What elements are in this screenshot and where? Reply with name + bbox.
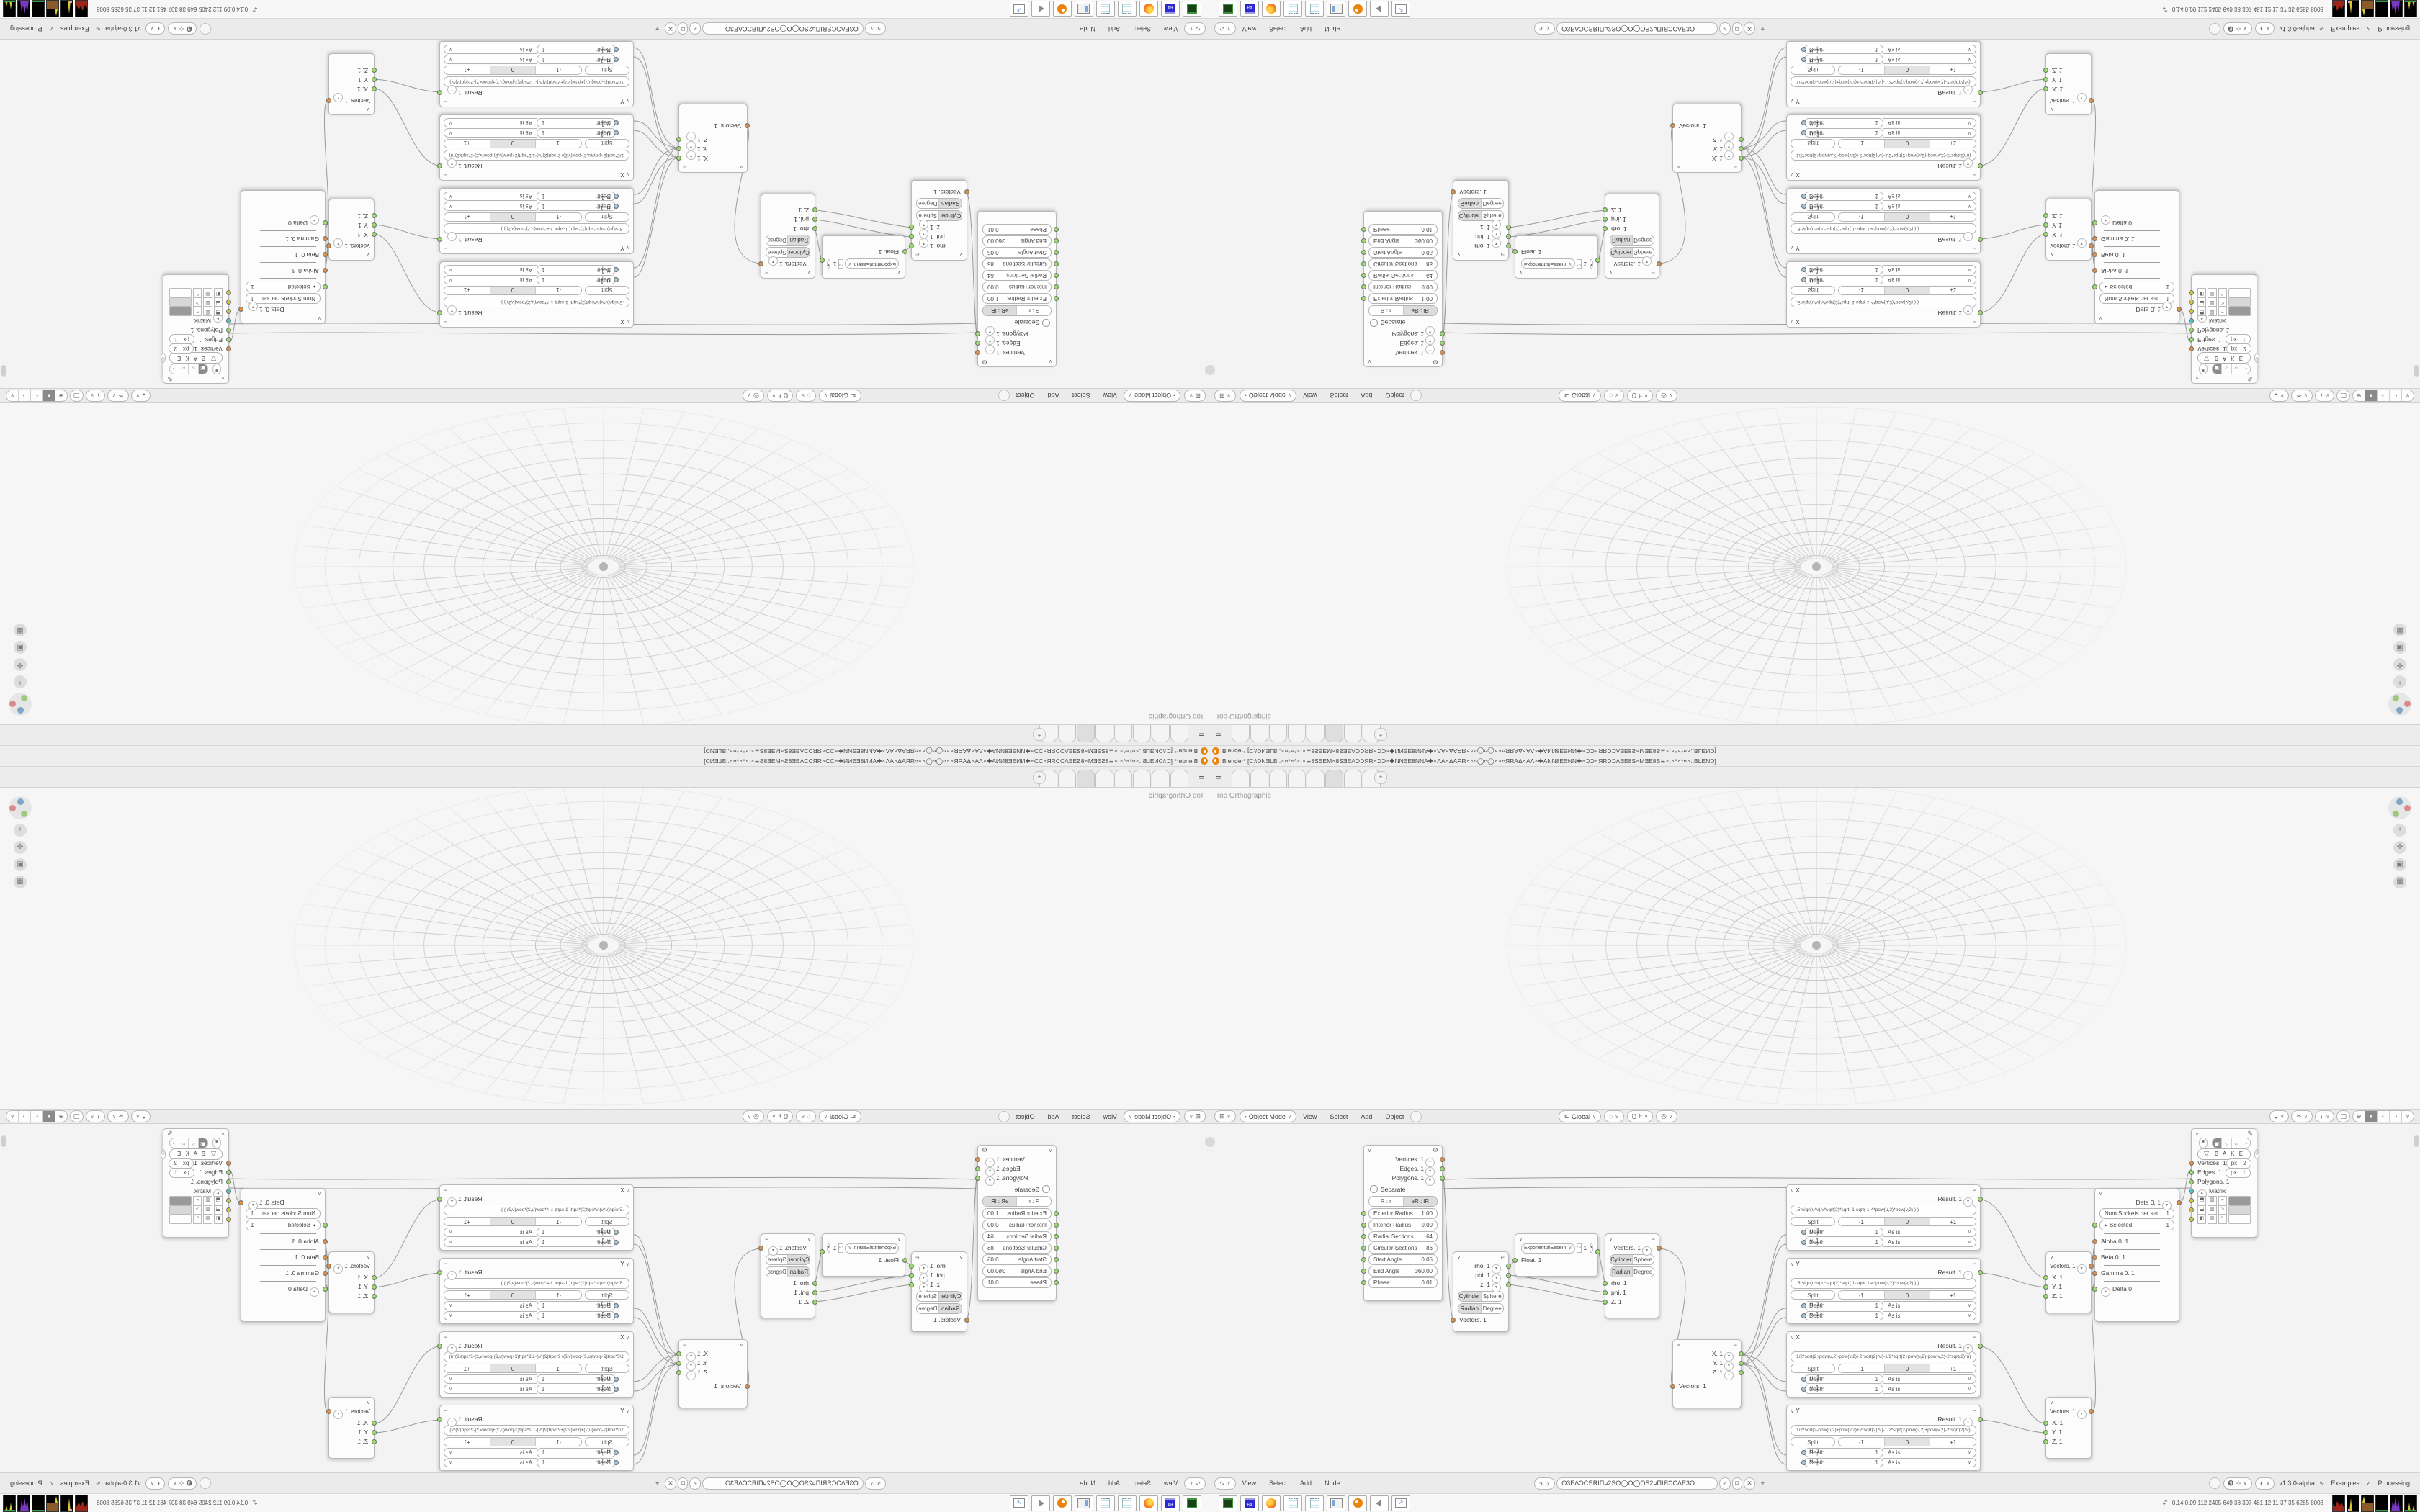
minus-one-button[interactable]: -1 (1839, 1291, 1884, 1299)
vector-in-node[interactable]: ∨ Vectors. 1▾ X. 1 Y. 1 Z. 1 (2045, 1251, 2092, 1313)
fake-user-shield-button[interactable]: ✓ (689, 23, 701, 35)
socket[interactable] (758, 261, 763, 266)
app-window-icon[interactable] (1075, 1, 1093, 17)
angle-unit-toggle[interactable]: RadianDegree (1458, 198, 1504, 209)
socket[interactable] (1361, 284, 1366, 289)
socket[interactable] (372, 1421, 377, 1426)
new-copy-button[interactable]: ⧉ (1732, 23, 1742, 35)
socket[interactable] (226, 1207, 231, 1212)
workspace-tab[interactable] (1288, 725, 1306, 742)
bake-button[interactable]: ▽B A K E (2197, 353, 2251, 364)
socket[interactable] (1054, 1280, 1059, 1285)
notepad-icon[interactable] (1283, 1495, 1302, 1511)
socket[interactable] (323, 1223, 328, 1228)
shading-solid-icon[interactable]: ● (43, 1111, 55, 1122)
socket[interactable] (676, 137, 681, 142)
socket[interactable] (1506, 234, 1511, 239)
collapse-icon[interactable]: ∨ (1049, 359, 1052, 365)
socket[interactable] (1440, 331, 1445, 336)
eye-icon[interactable]: ◉ (212, 364, 221, 374)
zero-button[interactable]: 0 (1884, 287, 1930, 294)
verts-toggle-icon[interactable]: ▣ (2213, 1138, 2221, 1148)
socket[interactable] (975, 341, 980, 346)
ramp-icon[interactable]: ﹆ (2218, 1205, 2227, 1215)
wifi-icon[interactable]: ◎ (161, 1149, 166, 1159)
plus-one-button[interactable]: +1 (444, 140, 490, 148)
coord-system-toggle[interactable]: CylinderSphere (1610, 1254, 1654, 1265)
shading-dropdown-icon[interactable]: ∨ (2401, 390, 2414, 401)
number-field[interactable]: Start Angle0.05 (982, 247, 1052, 258)
socket[interactable] (2043, 1275, 2048, 1280)
menu-object[interactable]: Object (1385, 1113, 1404, 1120)
socket[interactable] (909, 234, 914, 239)
pan-icon[interactable]: ✛ (14, 841, 27, 854)
split-button[interactable]: Split (585, 1437, 629, 1446)
formula-node-x[interactable]: ∨X⌐ Result. 1▾ .5*sign(u*v)/v*sqrt(2)*sq… (439, 261, 634, 328)
formula-input[interactable]: .5*sign(u*v)/u*sqrt(2)*sqrt( 1-sqrt( 1-4… (1791, 223, 1976, 234)
unlink-button[interactable]: ✕ (1744, 23, 1755, 35)
shading-rendered-icon[interactable]: ◑ (2389, 390, 2401, 401)
collapse-icon[interactable]: ∨ (367, 1254, 370, 1260)
socket[interactable] (1801, 1230, 1806, 1235)
socket[interactable] (1603, 1300, 1608, 1305)
socket[interactable] (1603, 1281, 1608, 1286)
workspace-tab[interactable] (1152, 770, 1170, 787)
split-button[interactable]: Split (585, 1217, 629, 1226)
vert-color-icon[interactable]: ⬒ (2197, 307, 2206, 316)
menu-view[interactable]: View (1164, 25, 1178, 32)
socket[interactable] (437, 1417, 442, 1422)
plus-one-button[interactable]: +1 (444, 66, 490, 74)
edges-toggle-icon[interactable]: ○ (2221, 1138, 2231, 1148)
wifi-icon[interactable]: ◎ (2254, 1149, 2259, 1159)
orientation-dropdown[interactable]: ⊾Global∨ (819, 390, 861, 402)
plus-one-button[interactable]: +1 (444, 1364, 490, 1372)
collapse-icon[interactable]: ∨ (897, 1236, 901, 1242)
socket[interactable] (323, 1255, 328, 1260)
collapse-icon[interactable]: ∨ (1791, 1336, 1794, 1341)
menu-add[interactable]: Add (1108, 25, 1120, 32)
socket[interactable] (372, 68, 377, 73)
split-button[interactable]: Split (585, 212, 629, 222)
torus-node[interactable]: ∨⚙ Vertices. 1▾ Edges. 1▾ Polygons. 1▾ S… (1363, 1145, 1443, 1301)
socket[interactable] (1361, 1246, 1366, 1251)
element-toggles[interactable]: ▣ ○ ○ ◔ (169, 364, 208, 374)
torus-node[interactable]: ∨⚙ Vertices. 1▾ Edges. 1▾ Polygons. 1▾ S… (977, 1145, 1057, 1301)
socket[interactable] (326, 1409, 331, 1414)
zoom-icon[interactable]: + (14, 824, 27, 837)
editor-type-dropdown[interactable]: ⊞∨ (1184, 390, 1206, 402)
collapse-icon[interactable]: ∨ (897, 271, 901, 276)
speaker-icon[interactable] (1031, 1, 1050, 17)
3d-viewport[interactable]: Top Orthographic + ✛ ▣ ▦ (0, 403, 1210, 724)
collapse-icon[interactable]: ∨ (959, 253, 963, 258)
torus-mode-toggle[interactable]: R : r eR : iR (1368, 305, 1438, 316)
collapse-icon[interactable]: ∨ (1609, 1236, 1613, 1242)
socket[interactable] (1451, 189, 1456, 194)
socket[interactable] (1512, 1258, 1518, 1263)
workspace-tab[interactable] (1307, 725, 1325, 742)
grid-toggle-icon[interactable]: ▦ (14, 624, 27, 636)
selected-field[interactable]: ▸Selected1 (2099, 282, 2174, 292)
app-window-icon[interactable] (1327, 1495, 1345, 1511)
num-sockets-field[interactable]: Num Sockets per set1 (246, 1208, 321, 1219)
socket[interactable] (1595, 1249, 1600, 1254)
window-arrow-icon[interactable]: ↗ (1010, 1, 1028, 17)
split-button[interactable]: Split (1791, 1217, 1835, 1226)
snap-dropdown[interactable]: Ʊ⊦∨ (767, 390, 794, 402)
socket[interactable] (2189, 318, 2194, 323)
menu-view[interactable]: View (1103, 1113, 1117, 1120)
add-workspace-button[interactable]: + (1033, 771, 1046, 784)
socket[interactable] (1440, 350, 1445, 355)
socket[interactable] (1361, 227, 1366, 232)
camera-icon[interactable]: ▣ (2393, 858, 2406, 871)
zero-button[interactable]: 0 (490, 213, 537, 221)
number-field[interactable]: Exterior Radius1.00 (1368, 1208, 1438, 1219)
bake-button[interactable]: ▽B A K E (169, 353, 223, 364)
layout-dropdown[interactable]: ➒⊹∨ (2223, 1477, 2252, 1490)
window-arrow-icon[interactable]: ↗ (1391, 1495, 1410, 1511)
formula-node-x[interactable]: ∨X⌐ Result. 1▾ .5*sign(u*v)/v*sqrt(2)*sq… (1786, 261, 1981, 328)
shading-wireframe-icon[interactable]: ⊕ (55, 1111, 67, 1122)
socket[interactable] (1978, 1417, 1983, 1422)
socket[interactable] (2043, 1430, 2048, 1435)
split-button[interactable]: Split (585, 139, 629, 148)
examples-menu[interactable]: Examples (60, 1480, 89, 1487)
minus-one-button[interactable]: -1 (536, 213, 581, 221)
coord-system-toggle[interactable]: CylinderSphere (766, 1254, 810, 1265)
layout-dropdown[interactable]: ➒⊹∨ (2223, 23, 2252, 35)
split-button[interactable]: Split (1791, 139, 1835, 148)
eye-icon[interactable]: ◉ (2199, 364, 2208, 374)
socket[interactable] (614, 277, 619, 282)
minus-one-button[interactable]: -1 (536, 1438, 581, 1446)
plus-one-button[interactable]: +1 (444, 1438, 490, 1446)
object-visibility-dropdown[interactable]: ◒∨ (131, 1110, 151, 1122)
tree-browse-dropdown[interactable]: ∿∨ (865, 23, 887, 35)
socket[interactable] (2189, 1217, 2194, 1222)
data-list-node[interactable]: ∨ Data 0. 1▾ Num Sockets per set1 ▸Selec… (241, 1188, 326, 1322)
shading-material-icon[interactable]: ◐ (2377, 1111, 2389, 1122)
verts-toggle-icon[interactable]: ▣ (199, 1138, 207, 1148)
separate-checkbox[interactable]: Separate (978, 1185, 1056, 1194)
object-visibility-dropdown[interactable]: ◒∨ (2269, 390, 2290, 402)
socket[interactable] (372, 213, 377, 218)
number-field[interactable]: Start Angle0.05 (982, 1254, 1052, 1265)
menu-node[interactable]: Node (1080, 25, 1095, 32)
palette-icon[interactable]: ▥ (2208, 297, 2216, 307)
menu-hamburger-icon[interactable]: ≡ (1216, 772, 1227, 781)
angle-unit-toggle[interactable]: RadianDegree (916, 198, 962, 209)
collapse-icon[interactable]: ∨ (1791, 1189, 1794, 1194)
collapse-icon[interactable]: ∨ (1609, 271, 1613, 276)
socket[interactable] (226, 1179, 231, 1184)
socket[interactable] (2092, 268, 2097, 273)
pin-icon[interactable]: ⌖ (655, 25, 659, 33)
editor-type-dropdown[interactable]: ∿∨ (1184, 1477, 1206, 1490)
socket[interactable] (2043, 1294, 2048, 1299)
shading-wireframe-icon[interactable]: ⊕ (2353, 390, 2365, 401)
socket[interactable] (1801, 47, 1806, 52)
workspace-tab[interactable] (1232, 770, 1250, 787)
xray-toggle[interactable]: ▢ (2336, 390, 2350, 402)
easing-node[interactable]: ∨ ExponentialEaseIn∨ ∿ 1 ▾ Float. 1 (1515, 1233, 1598, 1277)
tree-name-field[interactable]: O3EΛƆCЯRIΠ¤2SO◯O◯OS2¤ΠIЯƆCΛE3O (702, 1477, 864, 1490)
socket[interactable] (1978, 1344, 1983, 1349)
formula-node-y2[interactable]: ∨Y⌐ Result. 1▾ 1/2*sqrt(2-pow(u,2)+pow(v… (439, 1405, 634, 1471)
wifi-icon[interactable]: ◎ (161, 354, 166, 364)
formula-input[interactable]: 1/2*sqrt(2+pow(u,2)-pow(v,2)+2*sqrt(2)*u… (1791, 150, 1976, 161)
collapse-icon[interactable]: ∨ (626, 1336, 629, 1341)
menu-node[interactable]: Node (1325, 1480, 1340, 1487)
socket[interactable] (676, 1351, 681, 1356)
element-toggles[interactable]: ▣ ○ ○ ◔ (2212, 364, 2251, 374)
unlink-button[interactable]: ✕ (665, 1477, 676, 1490)
socket[interactable] (614, 1240, 619, 1245)
socket[interactable] (1054, 296, 1059, 301)
tool-settings-button[interactable] (998, 390, 1010, 402)
zero-button[interactable]: 0 (490, 140, 537, 148)
plus-one-button[interactable]: +1 (444, 287, 490, 294)
number-field[interactable]: Phase0.01 (1368, 1277, 1438, 1288)
socket[interactable] (437, 237, 442, 242)
split-button[interactable]: Split (1791, 1290, 1835, 1300)
socket[interactable] (2092, 220, 2097, 225)
workspace-tab[interactable] (1114, 725, 1132, 742)
socket[interactable] (1670, 123, 1675, 128)
angle-unit-toggle[interactable]: RadianDegree (1610, 1266, 1654, 1277)
xray-toggle[interactable]: ▢ (70, 1110, 84, 1122)
socket[interactable] (909, 1264, 914, 1269)
vector-polar-in-node[interactable]: ∨⌐ Vectors. 1▾ CylinderSphere RadianDegr… (1605, 194, 1659, 279)
socket[interactable] (1801, 120, 1806, 125)
collapse-icon[interactable]: ∨ (1457, 253, 1461, 258)
socket[interactable] (1801, 194, 1806, 199)
minus-one-button[interactable]: -1 (536, 140, 581, 148)
blender-taskbar-icon[interactable] (1348, 1, 1367, 17)
socket[interactable] (238, 307, 243, 312)
socket[interactable] (1440, 1157, 1445, 1162)
collapse-icon[interactable]: ∨ (1368, 1148, 1371, 1153)
overlays-dropdown[interactable]: ◐∨ (86, 1110, 106, 1122)
number-field[interactable]: Exterior Radius1.00 (982, 1208, 1052, 1219)
verts-toggle-icon[interactable]: ▣ (199, 364, 207, 374)
menu-node[interactable]: Node (1080, 1480, 1095, 1487)
socket[interactable] (812, 226, 817, 231)
tool-circle-button[interactable] (200, 1477, 211, 1489)
socket[interactable] (1978, 90, 1983, 95)
ramp-icon[interactable]: ϟ (2218, 1215, 2227, 1224)
torus-mode-toggle[interactable]: R : r eR : iR (1368, 1196, 1438, 1207)
formula-input[interactable]: 1/2*sqrt(2-pow(u,2)+pow(v,2)+2*sqrt(2)*v… (1791, 76, 1976, 87)
formula-node-x2[interactable]: ∨X⌐ Result. 1▾ 1/2*sqrt(2+pow(u,2)-pow(v… (439, 114, 634, 181)
tree-browse-dropdown[interactable]: ∿∨ (1534, 23, 1556, 35)
socket[interactable] (676, 1370, 681, 1375)
plus-one-button[interactable]: +1 (444, 1218, 490, 1225)
vector-in-node[interactable]: ∨ Vectors. 1▾ X. 1 Y. 1 Z. 1 (328, 53, 375, 115)
socket[interactable] (1054, 1246, 1059, 1251)
palette-icon[interactable]: ▥ (2208, 1215, 2216, 1224)
vector-in-node[interactable]: ∨ Vectors. 1▾ X. 1 Y. 1 Z. 1 (2045, 199, 2092, 261)
easing-node[interactable]: ∨ ExponentialEaseIn∨ ∿ 1 ▾ Float. 1 (822, 1233, 905, 1277)
editor-type-dropdown[interactable]: ∿∨ (1214, 1477, 1236, 1490)
socket[interactable] (1361, 1280, 1366, 1285)
floppy-64-icon[interactable]: 64 (1240, 1495, 1259, 1511)
pin-icon[interactable]: ⌖ (1761, 1480, 1765, 1488)
new-copy-button[interactable]: ⧉ (678, 23, 688, 35)
split-button[interactable]: Split (585, 66, 629, 75)
vector-out-node[interactable]: ∨⌐ X. 1▾ Y. 1▾ Z. 1▾ Vectors. 1 (1672, 1339, 1742, 1408)
vector-polar-in-node[interactable]: ∨⌐ Vectors. 1▾ CylinderSphere RadianDegr… (761, 194, 815, 279)
menu-select[interactable]: Select (1133, 25, 1151, 32)
socket[interactable] (2189, 1198, 2194, 1203)
add-workspace-button[interactable]: + (1374, 771, 1387, 784)
coord-system-toggle[interactable]: CylinderSphere (1458, 1291, 1504, 1302)
data-list-node[interactable]: ∨ Data 0. 1▾ Num Sockets per set1 ▸Selec… (241, 190, 326, 324)
socket[interactable] (2043, 77, 2048, 82)
window-title-bar[interactable]: Blender* [C:\DNƎLB..∘¤*∘*∘:∘≅8SƎEM∘8SƎEΛ… (1210, 745, 2420, 756)
num-sockets-field[interactable]: Num Sockets per set1 (2099, 1208, 2174, 1219)
window-title-bar[interactable]: Blender* [C:\DNƎLB..∘¤*∘*∘:∘≅8SƎEM∘8SƎEΛ… (0, 745, 1210, 756)
axis-gizmo[interactable] (9, 796, 32, 819)
socket[interactable] (2189, 1189, 2194, 1194)
formula-node-y[interactable]: ∨Y⌐ Result. 1▾ .5*sign(u*v)/u*sqrt(2)*sq… (439, 188, 634, 254)
minus-one-button[interactable]: -1 (1839, 1438, 1884, 1446)
zero-button[interactable]: 0 (1884, 1364, 1930, 1372)
firefox-icon[interactable] (1139, 1, 1158, 17)
socket[interactable] (902, 1258, 907, 1263)
shading-wireframe-icon[interactable]: ⊕ (55, 390, 67, 401)
socket[interactable] (1361, 261, 1366, 266)
tree-name-field[interactable]: O3EΛƆCЯRIΠ¤2SO◯O◯OS2¤ΠIЯƆCΛE3O (1556, 1477, 1718, 1490)
selected-field[interactable]: ▸Selected1 (246, 1220, 321, 1230)
socket[interactable] (2043, 1421, 2048, 1426)
emulator-icon[interactable] (1183, 1495, 1201, 1511)
selected-field[interactable]: ▸Selected1 (246, 282, 321, 292)
window-arrow-icon[interactable]: ↗ (1010, 1495, 1028, 1511)
zero-button[interactable]: 0 (490, 1438, 537, 1446)
palette-icon[interactable]: ▥ (2208, 1196, 2216, 1205)
emulator-icon[interactable] (1219, 1495, 1237, 1511)
workspace-tab[interactable] (1250, 725, 1268, 742)
socket[interactable] (676, 146, 681, 151)
camera-icon[interactable]: ▣ (14, 858, 27, 871)
socket[interactable] (437, 163, 442, 168)
menu-view[interactable]: View (1164, 1480, 1178, 1487)
easing-mode-dropdown[interactable]: ExponentialEaseIn∨ (845, 1243, 899, 1254)
socket[interactable] (372, 86, 377, 91)
split-button[interactable]: Split (1791, 212, 1835, 222)
socket[interactable] (909, 243, 914, 248)
socket[interactable] (323, 220, 328, 225)
orientation-dropdown[interactable]: ⊾Global∨ (819, 1110, 861, 1122)
overlay-dropdown[interactable]: ◐∨ (2255, 23, 2275, 35)
shade-toggle-icon[interactable]: ◔ (2241, 364, 2250, 374)
zero-button[interactable]: 0 (1884, 1438, 1930, 1446)
socket[interactable] (2177, 1200, 2182, 1205)
angle-unit-toggle[interactable]: RadianDegree (766, 1266, 810, 1277)
socket[interactable] (2189, 328, 2194, 333)
split-button[interactable]: Split (1791, 1364, 1835, 1373)
socket[interactable] (1739, 1370, 1744, 1375)
socket[interactable] (1801, 130, 1806, 135)
formula-node-y[interactable]: ∨Y⌐ Result. 1▾ .5*sign(u*v)/u*sqrt(2)*sq… (1786, 188, 1981, 254)
easing-mode-dropdown[interactable]: ExponentialEaseIn∨ (1521, 1243, 1575, 1254)
formula-input[interactable]: 1/2*sqrt(2-pow(u,2)+pow(v,2)+2*sqrt(2)*v… (444, 1425, 629, 1436)
selected-field[interactable]: ▸Selected1 (2099, 1220, 2174, 1230)
socket[interactable] (614, 1460, 619, 1465)
socket[interactable] (964, 189, 969, 194)
socket[interactable] (2092, 252, 2097, 257)
split-button[interactable]: Split (585, 1364, 629, 1373)
ramp-icon[interactable]: ﹆ (193, 297, 202, 307)
socket[interactable] (1361, 250, 1366, 255)
minus-one-button[interactable]: -1 (536, 1291, 581, 1299)
edge-color-icon[interactable]: ⬓ (214, 297, 223, 307)
plus-one-button[interactable]: +1 (1930, 287, 1976, 294)
workspace-tab[interactable] (1250, 770, 1268, 787)
workspace-tab[interactable] (1133, 725, 1151, 742)
socket[interactable] (1054, 261, 1059, 266)
number-field[interactable]: End Angle360.00 (1368, 1266, 1438, 1277)
socket[interactable] (1361, 238, 1366, 243)
socket[interactable] (326, 1264, 331, 1269)
eye-icon[interactable]: ◉ (2199, 1138, 2208, 1148)
socket[interactable] (323, 284, 328, 289)
palette-icon[interactable]: ▥ (203, 1205, 212, 1215)
floppy-64-icon[interactable]: 64 (1240, 1, 1259, 17)
editor-type-dropdown[interactable]: ⊞∨ (1184, 1110, 1206, 1122)
collapse-icon[interactable]: ∨ (626, 319, 629, 324)
zero-button[interactable]: 0 (490, 1291, 537, 1299)
number-field[interactable]: Circular Sections86 (982, 1243, 1052, 1254)
collapse-icon[interactable]: ∨ (221, 1131, 225, 1137)
menu-add[interactable]: Add (1048, 392, 1059, 400)
menu-add[interactable]: Add (1108, 1480, 1120, 1487)
menu-add[interactable]: Add (1300, 1480, 1312, 1487)
socket[interactable] (2092, 1287, 2097, 1292)
socket[interactable] (964, 1318, 969, 1323)
collapse-icon[interactable]: ∨ (1049, 1148, 1052, 1153)
collapse-icon[interactable]: ∨ (1677, 1342, 1680, 1348)
socket[interactable] (226, 290, 231, 295)
socket[interactable] (1739, 1361, 1744, 1366)
workspace-tab[interactable] (1344, 770, 1362, 787)
collapse-icon[interactable]: ∨ (1368, 359, 1371, 365)
gizmo-dropdown[interactable]: ✂∨ (2291, 1110, 2313, 1122)
socket[interactable] (812, 1300, 817, 1305)
menu-view[interactable]: View (1303, 392, 1317, 400)
socket[interactable] (372, 1284, 377, 1290)
socket[interactable] (1361, 273, 1366, 278)
number-field[interactable]: End Angle360.00 (982, 1266, 1052, 1277)
edges-toggle-icon[interactable]: ○ (189, 364, 198, 374)
collapse-icon[interactable]: ∨ (740, 165, 743, 171)
menu-node[interactable]: Node (1325, 25, 1340, 32)
element-toggles[interactable]: ▣ ○ ○ ◔ (169, 1138, 208, 1148)
palette-icon[interactable]: ▥ (203, 307, 212, 316)
shading-material-icon[interactable]: ◐ (2377, 390, 2389, 401)
menu-select[interactable]: Select (1330, 392, 1348, 400)
socket[interactable] (2092, 1255, 2097, 1260)
tree-browse-dropdown[interactable]: ∿∨ (865, 1477, 887, 1490)
palette-icon[interactable]: ▥ (203, 1215, 212, 1224)
object-visibility-dropdown[interactable]: ◒∨ (2269, 1110, 2290, 1122)
minus-one-button[interactable]: -1 (1839, 287, 1884, 294)
formula-input[interactable]: 1/2*sqrt(2-pow(u,2)+pow(v,2)+2*sqrt(2)*v… (1791, 1425, 1976, 1436)
menu-select[interactable]: Select (1269, 25, 1287, 32)
